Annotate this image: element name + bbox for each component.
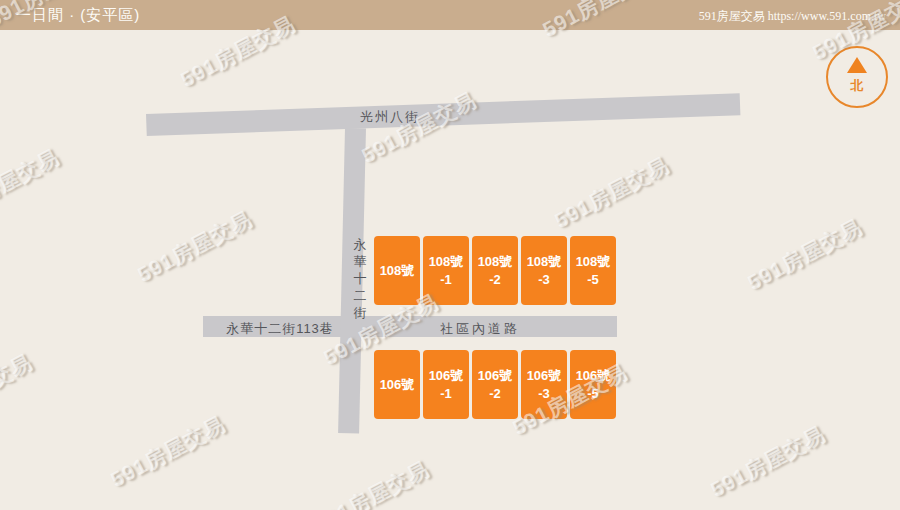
building-label: 106號 xyxy=(429,367,464,385)
building-label: 108號 xyxy=(380,262,415,280)
building-108-1[interactable]: 108號-1 xyxy=(423,236,469,305)
building-label: 106號 xyxy=(527,367,562,385)
building-106-1[interactable]: 106號-1 xyxy=(423,350,469,419)
page-title: 一日間 · (安平區) xyxy=(16,6,140,25)
header-bar: 一日間 · (安平區) 591房屋交易 https://www.591.com.… xyxy=(0,0,900,30)
building-label-suffix: -1 xyxy=(440,271,452,289)
building-108-3[interactable]: 108號-3 xyxy=(521,236,567,305)
building-label-suffix: -5 xyxy=(587,271,599,289)
building-108-2[interactable]: 108號-2 xyxy=(472,236,518,305)
building-label-suffix: -1 xyxy=(440,385,452,403)
building-label: 106號 xyxy=(576,367,611,385)
building-label: 108號 xyxy=(527,253,562,271)
building-label: 108號 xyxy=(478,253,513,271)
building-label-suffix: -5 xyxy=(587,385,599,403)
building-label: 106號 xyxy=(478,367,513,385)
building-label-suffix: -2 xyxy=(489,271,501,289)
building-label-suffix: -3 xyxy=(538,271,550,289)
building-label: 108號 xyxy=(576,253,611,271)
building-label: 108號 xyxy=(429,253,464,271)
building-106-2[interactable]: 106號-2 xyxy=(472,350,518,419)
building-106-3[interactable]: 106號-3 xyxy=(521,350,567,419)
building-106-5[interactable]: 106號-5 xyxy=(570,350,616,419)
building-label-suffix: -3 xyxy=(538,385,550,403)
building-label-suffix: -2 xyxy=(489,385,501,403)
north-arrow-icon xyxy=(847,57,867,73)
compass-north-label: 北 xyxy=(851,77,864,95)
building-layer: 108號108號-1108號-2108號-3108號-5106號106號-110… xyxy=(0,0,900,510)
source-attribution: 591房屋交易 https://www.591.com.tw xyxy=(699,8,886,25)
building-label: 106號 xyxy=(380,376,415,394)
building-108[interactable]: 108號 xyxy=(374,236,420,305)
building-108-5[interactable]: 108號-5 xyxy=(570,236,616,305)
compass-north-indicator: 北 xyxy=(826,46,888,108)
building-106[interactable]: 106號 xyxy=(374,350,420,419)
